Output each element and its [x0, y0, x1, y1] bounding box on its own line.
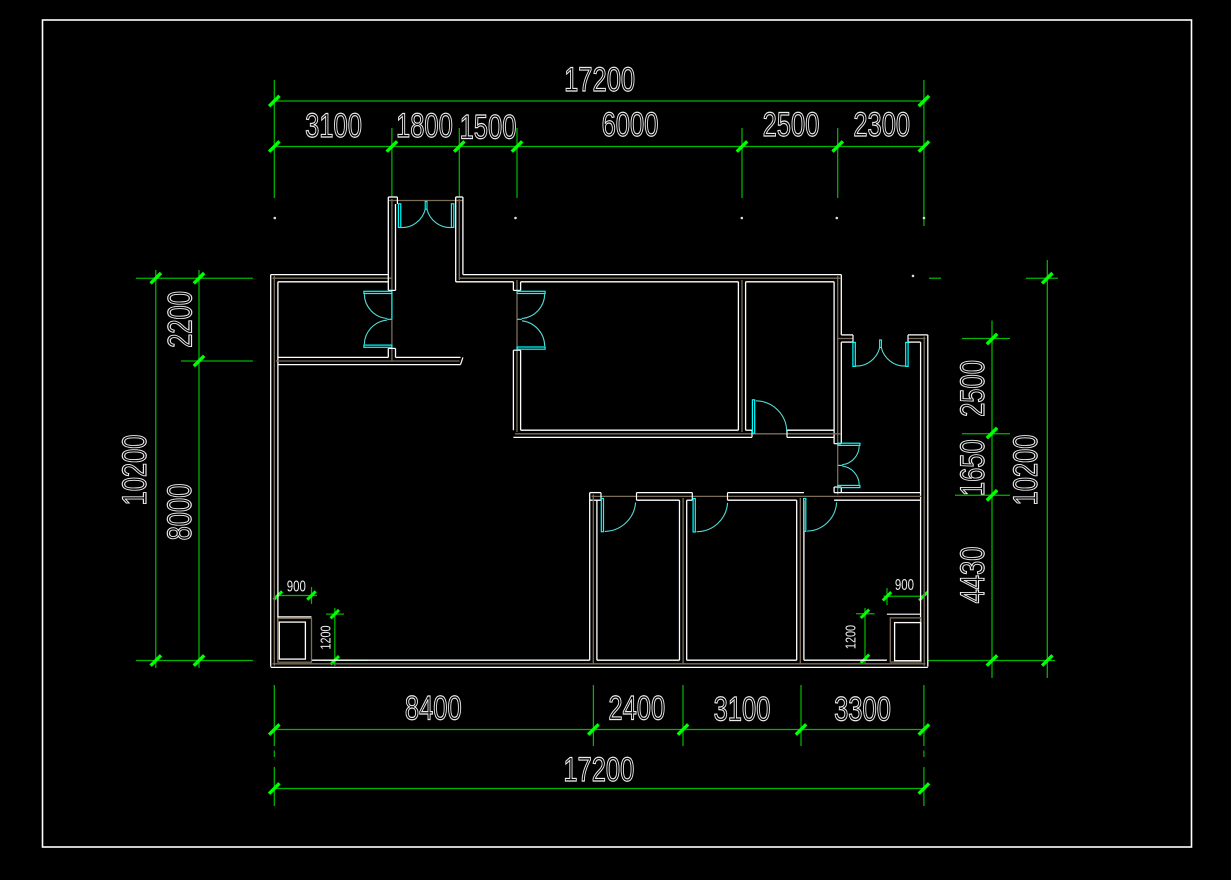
svg-text:900: 900 [287, 578, 306, 595]
svg-text:17200: 17200 [564, 62, 635, 99]
svg-text:4430: 4430 [955, 547, 992, 604]
svg-text:17200: 17200 [563, 752, 634, 789]
svg-text:900: 900 [895, 576, 914, 593]
svg-text:1200: 1200 [842, 625, 859, 649]
svg-text:2200: 2200 [162, 291, 199, 348]
svg-text:10200: 10200 [1008, 435, 1045, 506]
svg-text:2300: 2300 [853, 107, 910, 144]
svg-text:1500: 1500 [460, 109, 517, 146]
svg-text:6000: 6000 [602, 107, 659, 144]
svg-text:3300: 3300 [834, 691, 891, 728]
svg-text:8000: 8000 [162, 484, 199, 541]
svg-text:2500: 2500 [763, 107, 820, 144]
svg-text:8400: 8400 [405, 690, 462, 727]
svg-text:3100: 3100 [714, 691, 771, 728]
svg-text:2400: 2400 [608, 690, 665, 727]
svg-text:1800: 1800 [396, 108, 453, 145]
svg-text:2500: 2500 [955, 360, 992, 417]
svg-text:10200: 10200 [117, 435, 154, 506]
svg-text:1200: 1200 [317, 625, 334, 649]
svg-text:1650: 1650 [955, 439, 992, 496]
svg-text:3100: 3100 [305, 108, 362, 145]
